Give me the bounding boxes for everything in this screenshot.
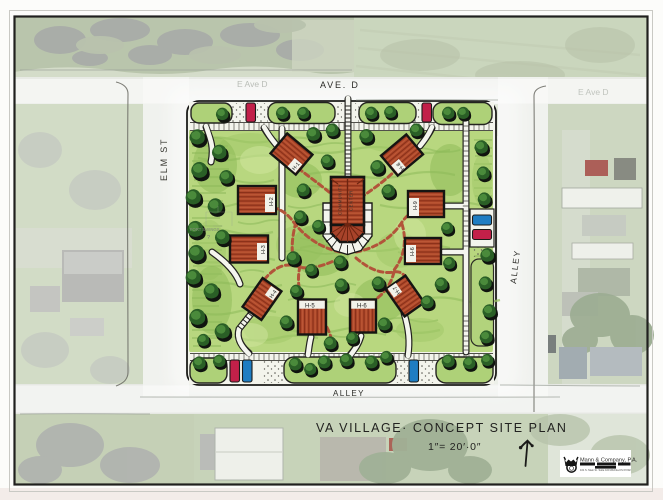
svg-text:H-6: H-6 <box>357 304 367 310</box>
svg-text:COMMUNITY: COMMUNITY <box>338 184 343 215</box>
svg-text:H-3: H-3 <box>261 245 267 254</box>
svg-text:ELM ST: ELM ST <box>159 138 169 181</box>
svg-text:AVE. D: AVE. D <box>320 80 360 90</box>
svg-text:ALLEY: ALLEY <box>333 389 365 398</box>
svg-text:H-9: H-9 <box>413 201 419 210</box>
svg-text:H-5: H-5 <box>305 304 315 310</box>
svg-text:H-6: H-6 <box>410 247 416 256</box>
svg-text:1″= 20′·0″: 1″= 20′·0″ <box>428 441 481 453</box>
svg-text:FORT SWINGS: FORT SWINGS <box>190 227 220 232</box>
svg-text:E Ave D: E Ave D <box>578 87 609 97</box>
svg-text:E Ave D: E Ave D <box>237 79 268 89</box>
svg-text:VA VILLAGE· CONCEPT SITE PLAN: VA VILLAGE· CONCEPT SITE PLAN <box>316 421 568 435</box>
svg-text:O: O <box>569 466 574 473</box>
svg-text:101 S. Main St. Suite 100 Wich: 101 S. Main St. Suite 100 Wichita KS 672… <box>580 468 631 472</box>
svg-text:H-2: H-2 <box>269 197 275 206</box>
svg-text:?: ? <box>207 235 210 241</box>
svg-text:CENTER: CENTER <box>349 190 354 211</box>
